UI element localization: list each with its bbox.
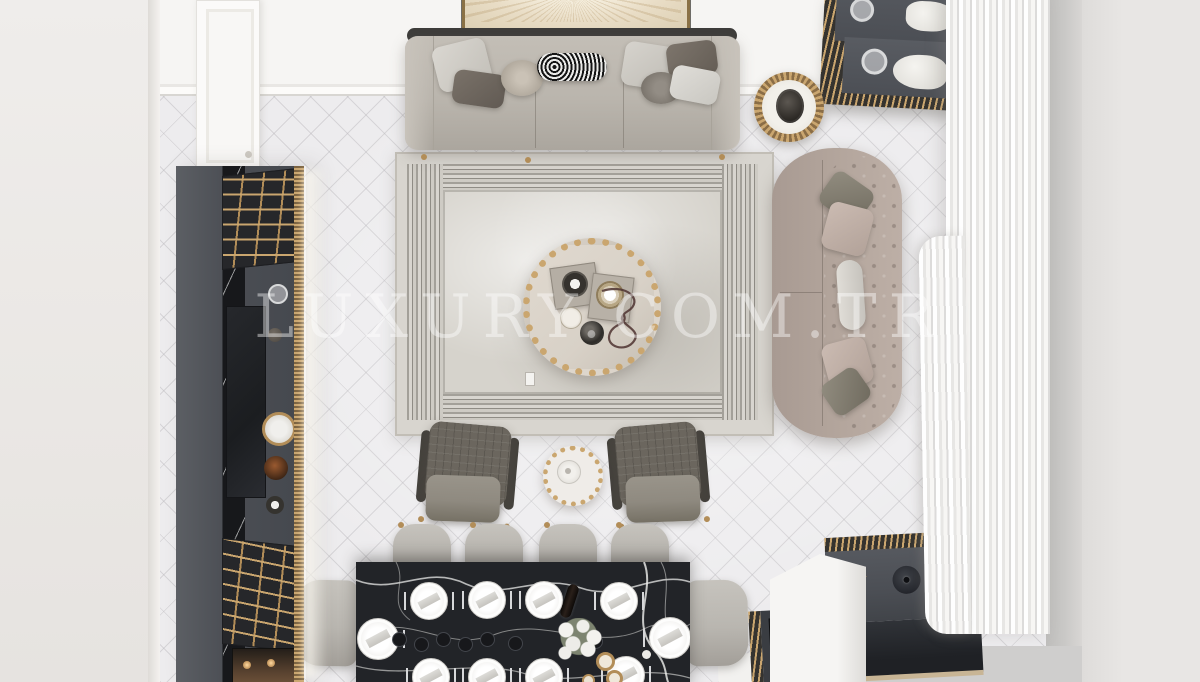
armchair-cushion bbox=[425, 474, 501, 523]
armchair-right bbox=[606, 420, 715, 532]
round-trinket-box bbox=[892, 565, 921, 594]
rug-stripe-border-top bbox=[443, 164, 722, 190]
dark-serving-bowl bbox=[436, 632, 451, 647]
sofa-arm-left bbox=[405, 36, 434, 150]
right-outer-area bbox=[1082, 0, 1200, 682]
sofa-leg bbox=[421, 154, 427, 160]
trinket-knob bbox=[903, 577, 909, 583]
entry-door bbox=[196, 0, 260, 170]
unit-decor-copper-bowl bbox=[264, 456, 288, 480]
napkin bbox=[476, 668, 499, 682]
three-seat-sofa bbox=[405, 28, 739, 162]
gold-candle-holder bbox=[596, 652, 615, 671]
door-handle bbox=[245, 151, 252, 158]
dark-serving-bowl bbox=[480, 632, 495, 647]
unit-display-case bbox=[232, 648, 296, 682]
pillow-optical-bolster bbox=[537, 53, 607, 81]
dark-serving-bowl bbox=[508, 636, 523, 651]
unit-decor-dotted-vase bbox=[266, 496, 284, 514]
art-sunburst bbox=[465, 0, 681, 22]
case-light bbox=[267, 659, 275, 667]
chair-leg bbox=[616, 522, 622, 528]
unit-decor-gold-dish bbox=[262, 412, 296, 446]
napkin bbox=[476, 591, 499, 608]
napkin bbox=[420, 668, 443, 682]
unit-brass-shelf-bottom bbox=[222, 538, 298, 652]
door-panel bbox=[206, 9, 254, 163]
unit-brass-fringe-edge bbox=[294, 166, 304, 682]
sofa-leg bbox=[525, 157, 531, 163]
case-light bbox=[243, 661, 251, 669]
led-glow bbox=[304, 170, 328, 678]
armchair-leg bbox=[418, 516, 425, 523]
room-top-view: LUXURY.COM.TR bbox=[0, 0, 1200, 682]
watermark: LUXURY.COM.TR bbox=[228, 282, 972, 352]
pillow-dark bbox=[451, 69, 507, 110]
napkin bbox=[657, 628, 682, 647]
wall-art bbox=[462, 0, 690, 31]
left-outer-wall bbox=[0, 0, 160, 682]
rug-stripe-border-bottom bbox=[443, 394, 722, 420]
dining-chair-end bbox=[685, 579, 748, 666]
fringed-side-table bbox=[754, 72, 824, 142]
napkin bbox=[533, 668, 556, 682]
dark-serving-bowl bbox=[458, 637, 473, 652]
dark-serving-bowl bbox=[392, 632, 407, 647]
right-wall-edge bbox=[1046, 0, 1082, 682]
side-table-dish-knob bbox=[565, 468, 571, 474]
gold-candle-holder bbox=[582, 674, 595, 682]
place-setting-plate bbox=[600, 582, 638, 620]
gold-candle-holder bbox=[606, 670, 623, 682]
place-setting-plate bbox=[468, 581, 506, 619]
napkin bbox=[418, 592, 441, 609]
dining-table bbox=[356, 562, 690, 682]
white-partition-wall bbox=[770, 554, 866, 682]
chair-leg bbox=[544, 522, 550, 528]
armchair-left bbox=[414, 420, 523, 532]
napkin bbox=[608, 592, 631, 609]
napkin bbox=[365, 629, 390, 648]
rug-label-tag bbox=[525, 372, 535, 386]
unit-brass-shelf-top bbox=[222, 168, 298, 270]
chair-leg bbox=[470, 522, 476, 528]
place-setting-plate bbox=[525, 581, 563, 619]
white-bloom bbox=[642, 650, 651, 659]
napkin bbox=[533, 591, 556, 608]
armchair-cushion bbox=[625, 475, 701, 524]
chair-leg bbox=[398, 522, 404, 528]
place-setting-plate bbox=[649, 617, 690, 659]
ribbed-vase bbox=[776, 89, 804, 123]
sofa-leg bbox=[719, 154, 725, 160]
armchair-leg bbox=[704, 516, 711, 523]
place-setting-plate bbox=[410, 582, 448, 620]
dark-serving-bowl bbox=[414, 637, 429, 652]
small-side-table bbox=[543, 446, 603, 506]
tv-wall-unit bbox=[176, 166, 306, 682]
